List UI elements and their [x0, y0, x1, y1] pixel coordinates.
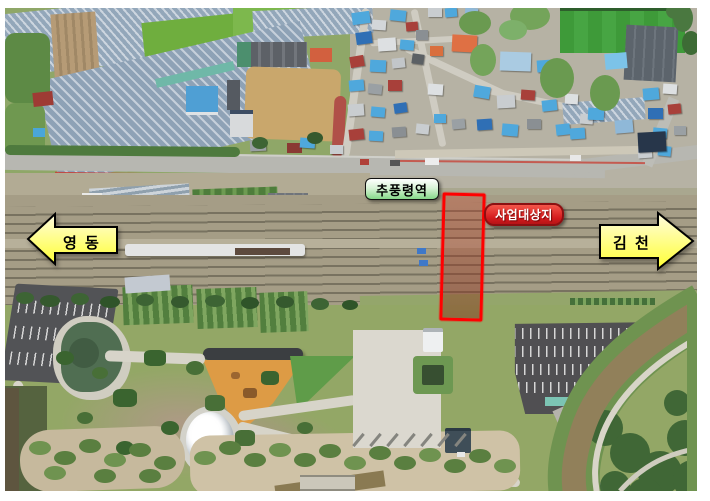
tree-icon [113, 389, 137, 407]
shrub [104, 453, 126, 467]
shrub [219, 441, 241, 455]
house [349, 55, 365, 68]
shrub [394, 456, 416, 470]
tree-icon [77, 412, 93, 424]
shrub [344, 456, 366, 470]
house [330, 145, 343, 154]
house [389, 9, 406, 22]
tree-icon [100, 296, 120, 308]
direction-label-left: 영 동 [63, 232, 101, 253]
site-label: 사업대상지 [484, 203, 564, 226]
shrub [44, 466, 66, 480]
house [411, 53, 424, 65]
house [500, 51, 532, 71]
tree-icon [682, 31, 697, 55]
tree-icon [136, 294, 154, 306]
tree-icon [92, 367, 108, 379]
shrub [369, 446, 391, 460]
tree-icon [342, 300, 358, 310]
house [521, 90, 536, 101]
bench-shadow [454, 433, 467, 447]
bench-shadow [437, 433, 450, 447]
site-boundary-box [439, 192, 485, 321]
house [348, 128, 364, 141]
tree-icon [276, 296, 294, 308]
bench-shadow [420, 433, 433, 447]
shrub [29, 441, 51, 455]
house [371, 106, 386, 117]
shrub [54, 451, 76, 465]
tree-icon [297, 422, 313, 434]
tree-icon [56, 351, 74, 365]
house [614, 119, 633, 134]
shrub [194, 451, 216, 465]
tree-icon [590, 75, 620, 111]
house [445, 8, 458, 18]
tree-icon [261, 371, 279, 385]
tree-icon [40, 295, 60, 307]
tree-icon [161, 421, 179, 435]
shrub [139, 469, 161, 483]
tree-icon [205, 295, 225, 307]
house [477, 118, 493, 130]
tree-icon [205, 395, 225, 411]
house [392, 57, 406, 68]
station-label-text: 추풍령역 [376, 180, 428, 199]
aerial-photo: 추풍령역 사업대상지 영 동 김 천 [5, 8, 697, 491]
house [392, 127, 407, 138]
shrub [469, 449, 491, 463]
house [416, 30, 428, 40]
house [668, 103, 682, 114]
house [351, 11, 370, 25]
shrub [444, 459, 466, 473]
house [570, 127, 586, 139]
house [430, 46, 443, 56]
tree-icon [470, 44, 496, 76]
house [428, 83, 444, 95]
house [372, 20, 387, 31]
house [527, 119, 541, 129]
house [369, 131, 384, 142]
shrub [94, 469, 116, 483]
house [348, 103, 365, 116]
tree-icon [499, 20, 527, 40]
house [497, 95, 516, 109]
house [434, 114, 446, 123]
house [643, 87, 660, 100]
tree-icon [307, 132, 323, 144]
house [674, 126, 686, 135]
shrub [154, 456, 176, 470]
direction-label-right: 김 천 [613, 232, 651, 253]
tree-icon [16, 292, 34, 304]
shrub [419, 448, 441, 462]
bench-shadow [352, 433, 365, 447]
house [400, 39, 415, 50]
tree-icon [540, 58, 574, 98]
house [541, 99, 557, 112]
house [452, 118, 466, 129]
house [428, 8, 442, 17]
house [355, 31, 373, 45]
house [393, 102, 407, 114]
house [368, 83, 383, 94]
house [648, 108, 663, 119]
tree-icon [186, 361, 204, 375]
house [370, 60, 387, 73]
figure-canvas: 추풍령역 사업대상지 영 동 김 천 [0, 0, 710, 501]
tree-icon [252, 137, 268, 149]
shrub [79, 439, 101, 453]
shrub [319, 444, 341, 458]
house [378, 37, 397, 51]
house [555, 123, 570, 135]
shrub [494, 459, 516, 473]
tree-icon [241, 297, 259, 309]
tree-icon [71, 293, 89, 305]
shrub [269, 443, 291, 457]
house [349, 79, 365, 91]
house [416, 123, 430, 134]
tree-icon [144, 350, 166, 366]
tree-icon [311, 298, 329, 310]
station-label: 추풍령역 [365, 178, 439, 200]
house [502, 123, 519, 136]
tree-icon [171, 296, 189, 308]
shrub [244, 453, 266, 467]
bench-shadow [386, 433, 399, 447]
house [663, 84, 678, 95]
house [388, 80, 402, 91]
house [637, 131, 666, 152]
shrub [294, 453, 316, 467]
house [565, 94, 579, 105]
tree-icon [459, 11, 491, 35]
bench-shadow [369, 433, 382, 447]
shrub [129, 443, 151, 457]
house [473, 85, 491, 100]
bench-shadow [403, 433, 416, 447]
site-label-text: 사업대상지 [495, 206, 553, 223]
